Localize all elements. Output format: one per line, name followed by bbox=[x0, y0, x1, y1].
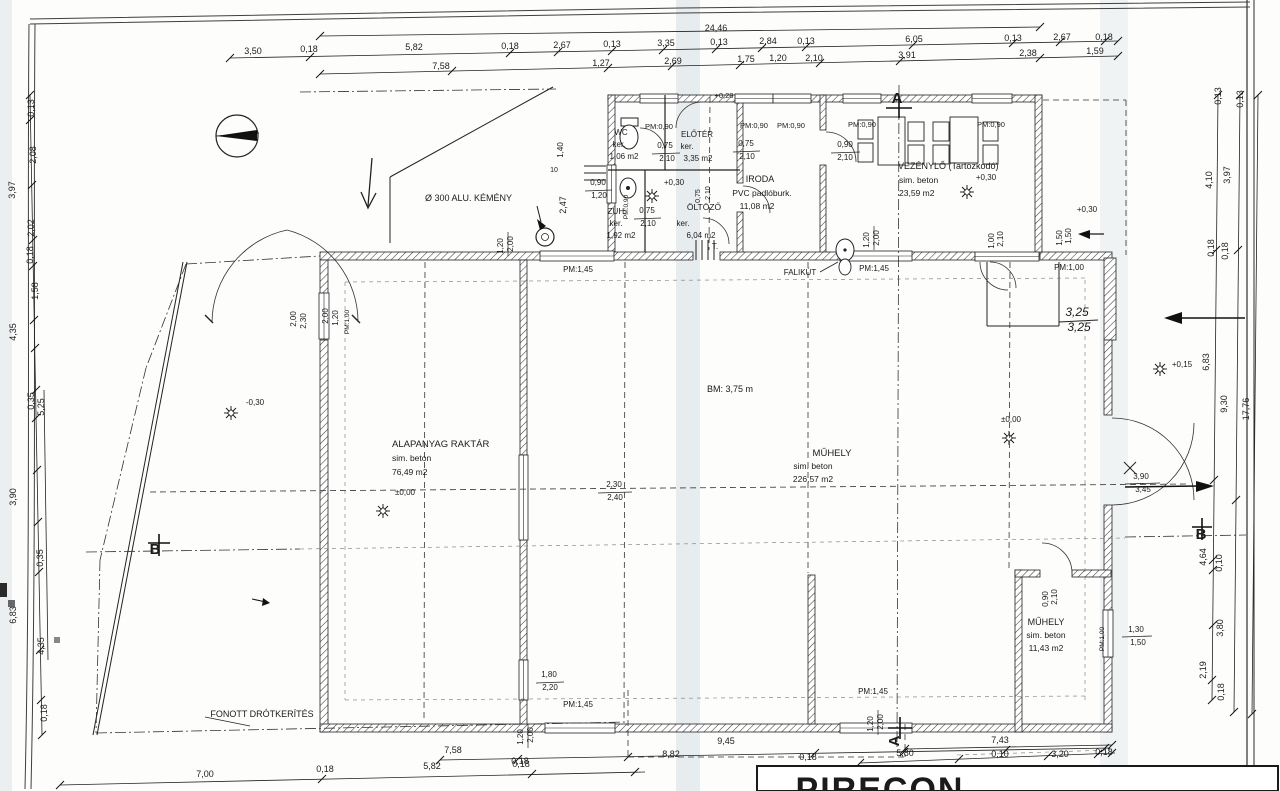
level-mark: +0,15 bbox=[1172, 360, 1193, 369]
dim-label: 2,20 bbox=[542, 683, 558, 692]
dim-label: 1,50 bbox=[1055, 230, 1064, 246]
level-mark: +0,30 bbox=[976, 173, 997, 182]
dim-label: 2,00 bbox=[872, 230, 881, 246]
wall bbox=[1015, 570, 1040, 577]
section-marker-a: A bbox=[892, 90, 903, 107]
dim-label: 1,50 bbox=[1130, 638, 1146, 647]
dim-label: 7,43 bbox=[991, 735, 1009, 745]
section-marker-a: A bbox=[886, 735, 903, 746]
dim-label: 2,10 bbox=[1050, 589, 1059, 605]
dim-label: 6,05 bbox=[905, 34, 923, 44]
dim-label: 2,10 bbox=[640, 219, 656, 228]
level-star-icon bbox=[376, 504, 390, 518]
dim-label: 9,45 bbox=[717, 736, 735, 746]
dim-label: PM:1,45 bbox=[859, 264, 889, 273]
dim-label: 10 bbox=[550, 167, 558, 174]
wall bbox=[1104, 258, 1116, 340]
dim-label: 1,58 bbox=[30, 282, 40, 300]
dim-label: 1,59 bbox=[1086, 46, 1104, 56]
room-name: ALAPANYAG RAKTÁR bbox=[392, 439, 489, 450]
room-name: VEZÉNYLŐ (Tartózkodó) bbox=[898, 161, 999, 171]
dim-label: 0,18 bbox=[1220, 242, 1230, 260]
wall bbox=[820, 95, 826, 130]
level-mark: ±0,00 bbox=[1001, 415, 1022, 424]
dim-label: sim. beton bbox=[793, 461, 832, 471]
dim-label: PM:1,00 bbox=[344, 310, 351, 335]
dim-label: 7,58 bbox=[432, 61, 450, 71]
dim-label: 1,00 bbox=[987, 233, 996, 249]
room-name: ÖLTÖZŐ bbox=[687, 202, 722, 212]
dim-label: 2,10 bbox=[659, 154, 675, 163]
wall bbox=[320, 724, 1112, 732]
dim-label: 0,18 bbox=[300, 44, 318, 54]
dim-label: 2,10 bbox=[837, 153, 853, 162]
dim-label: 2,10 bbox=[805, 53, 823, 63]
dim-label: PM:0,90 bbox=[740, 121, 768, 130]
dim-label: 7,58 bbox=[444, 745, 462, 755]
dim-label: 2,00 bbox=[876, 714, 885, 730]
dim-label: PM:0,90 bbox=[623, 195, 630, 220]
room-name: ELŐTÉR bbox=[681, 130, 713, 139]
dim-label: 3,80 bbox=[1215, 619, 1225, 637]
dim-label: 0,13 bbox=[603, 39, 621, 49]
dim-label: 6,83 bbox=[1201, 353, 1211, 371]
dim-label: 1,20 bbox=[769, 53, 787, 63]
room-area: 11,08 m2 bbox=[740, 201, 775, 211]
dim-label: 2,69 bbox=[664, 56, 682, 66]
dim-label: PM:0,90 bbox=[848, 120, 876, 129]
dim-label: 2,38 bbox=[1019, 48, 1037, 58]
room-name: MŰHELY bbox=[813, 448, 853, 459]
dim-label: PVC padlóburk. bbox=[732, 188, 792, 198]
wall bbox=[1072, 570, 1111, 577]
dim-label: 0,35 bbox=[35, 549, 45, 567]
dim-label: sim. beton bbox=[899, 175, 938, 185]
dim-label: 0,18 bbox=[1206, 239, 1216, 257]
dim-label: 1,20 bbox=[496, 238, 505, 254]
dim-label: 0,75 bbox=[695, 189, 702, 203]
dim-label: 8,82 bbox=[662, 749, 680, 759]
dim-label: 2,00 bbox=[321, 308, 330, 324]
dim-label: 2,10 bbox=[705, 186, 712, 200]
dim-label: 2,84 bbox=[759, 36, 777, 46]
room-area: 3,35 m2 bbox=[684, 154, 713, 163]
dim-label: 1,80 bbox=[541, 670, 557, 679]
level-star-icon bbox=[224, 406, 238, 420]
dim-label: 4,35 bbox=[36, 637, 46, 655]
dim-label: 2,19 bbox=[1198, 661, 1208, 679]
wall bbox=[1040, 252, 1112, 260]
dim-label: PM:0,90 bbox=[777, 121, 805, 130]
dim-label: 3,97 bbox=[7, 181, 17, 199]
dim-label: 0,90 bbox=[837, 140, 853, 149]
dim-label: 0,18 bbox=[1216, 683, 1226, 701]
dim-label: 2,02 bbox=[26, 219, 36, 237]
room-area: 1,92 m2 bbox=[607, 231, 636, 240]
dim-label: 1,30 bbox=[1128, 625, 1144, 634]
dim-label: 0,35 bbox=[26, 392, 36, 410]
room-area: 6,04 m2 bbox=[687, 231, 716, 240]
dim-label: sim. beton bbox=[392, 453, 431, 463]
level-mark: -0,30 bbox=[246, 398, 265, 407]
dim-label: 0,18 bbox=[799, 752, 817, 762]
wall bbox=[808, 575, 815, 724]
dim-label: 3,50 bbox=[244, 46, 262, 56]
dim-label: 0,10 bbox=[991, 749, 1009, 759]
callout-wall-tap: FALIKÚT bbox=[784, 268, 817, 277]
dim-label: 3,90 bbox=[1133, 472, 1149, 481]
wall bbox=[1104, 505, 1112, 610]
room-name: WC bbox=[614, 128, 628, 137]
dim-label: 7,00 bbox=[196, 769, 214, 779]
wall bbox=[737, 212, 743, 258]
dim-label: 2,08 bbox=[28, 146, 38, 164]
section-marker-b: B bbox=[1196, 526, 1207, 543]
dim-label: PM:0,90 bbox=[977, 120, 1005, 129]
dim-label: 3,35 bbox=[657, 38, 675, 48]
wall bbox=[520, 540, 527, 660]
room-name: IRODA bbox=[746, 174, 775, 184]
dim-label: 1,20 bbox=[862, 232, 871, 248]
dim-label: 0,13 bbox=[26, 99, 36, 117]
dim-label: 24,46 bbox=[705, 23, 728, 33]
room-area: 11,43 m2 bbox=[1029, 643, 1064, 653]
wall bbox=[520, 260, 527, 455]
dim-label: 4,10 bbox=[1204, 171, 1214, 189]
dim-label: 1,27 bbox=[592, 58, 610, 68]
dim-label: 2,10 bbox=[739, 152, 755, 161]
dim-label: 2,00 bbox=[506, 236, 515, 252]
wall bbox=[520, 700, 527, 724]
dim-label: 0,13 bbox=[1004, 33, 1022, 43]
level-mark: +0,30 bbox=[1077, 205, 1098, 214]
dim-label: 3,97 bbox=[1222, 166, 1232, 184]
dim-label: PM:1,45 bbox=[563, 265, 593, 274]
level-mark: ±0,00 bbox=[395, 488, 416, 497]
dim-label: 4,64 bbox=[1198, 548, 1208, 566]
dim-label: 0,10 bbox=[1214, 554, 1224, 572]
dim-label: PM:1,45 bbox=[858, 687, 888, 696]
dim-label: 17,76 bbox=[1241, 398, 1251, 421]
dim-label: 0,18 bbox=[1095, 747, 1113, 757]
dim-label: 3,45 bbox=[1135, 485, 1151, 494]
height-note: BM: 3,75 m bbox=[707, 384, 753, 394]
callout-fence: FONOTT DRÓTKERÍTÉS bbox=[210, 709, 313, 719]
dim-label: 0,13 bbox=[1235, 90, 1245, 108]
dim-label: ker. bbox=[613, 140, 626, 149]
floor-plan-drawing: 24,463,500,185,820,182,670,133,350,132,8… bbox=[0, 0, 1280, 791]
dim-label: 2,30 bbox=[299, 313, 308, 329]
dim-label: 1,50 bbox=[1064, 228, 1073, 244]
dim-label: 0,18 bbox=[501, 41, 519, 51]
dim-label: 0,13 bbox=[710, 37, 728, 47]
dim-label: 3,90 bbox=[8, 488, 18, 506]
dim-label: 5,82 bbox=[423, 761, 441, 771]
dim-label: 1,20 bbox=[331, 310, 340, 326]
room-area: 76,49 m2 bbox=[392, 467, 428, 477]
dim-label: 0,18 bbox=[39, 704, 49, 722]
dim-label: 0,90 bbox=[1041, 591, 1050, 607]
dim-label: 5,82 bbox=[405, 42, 423, 52]
dim-label: 5,25 bbox=[36, 398, 46, 416]
dim-label: 1,20 bbox=[866, 716, 875, 732]
handwritten-dim: 3,25 bbox=[1067, 320, 1091, 334]
wall bbox=[320, 252, 693, 260]
dim-label: 3,91 bbox=[898, 50, 916, 60]
dim-label: 0,18 bbox=[316, 764, 334, 774]
dim-label: 0,18 bbox=[512, 759, 530, 769]
dim-label: 0,18 bbox=[25, 246, 35, 264]
dim-label: sim. beton bbox=[1026, 630, 1065, 640]
level-star-icon bbox=[1153, 362, 1167, 376]
scanned-floor-plan-page: 24,463,500,185,820,182,670,133,350,132,8… bbox=[0, 0, 1280, 791]
dim-label: 2,30 bbox=[606, 480, 622, 489]
dim-label: 3,20 bbox=[1051, 749, 1069, 759]
section-marker-b: B bbox=[150, 541, 161, 558]
level-mark: +0,30 bbox=[664, 178, 685, 187]
dim-label: 0,75 bbox=[639, 206, 655, 215]
dim-label: 2,40 bbox=[607, 493, 623, 502]
dim-label: 0,75 bbox=[657, 141, 673, 150]
room-name: MŰHELY bbox=[1028, 617, 1065, 627]
dim-label: 2,00 bbox=[289, 311, 298, 327]
dim-label: 4,35 bbox=[8, 323, 18, 341]
dim-label: 1,75 bbox=[737, 54, 755, 64]
dim-label: 6,83 bbox=[8, 606, 18, 624]
title-block-company: PIRECON bbox=[796, 771, 965, 791]
dim-label: ker. bbox=[610, 219, 623, 228]
wall bbox=[320, 340, 328, 732]
dim-label: 0,75 bbox=[738, 139, 754, 148]
dim-label: PM:1,00 bbox=[1054, 263, 1084, 272]
dim-label: 0,90 bbox=[590, 178, 606, 187]
room-area: 1,06 m2 bbox=[610, 152, 639, 161]
dim-label: 2,10 bbox=[996, 231, 1005, 247]
dim-label: 2,67 bbox=[1053, 32, 1071, 42]
dim-label: PM:0,90 bbox=[645, 122, 673, 131]
scan-artifacts bbox=[0, 0, 1280, 791]
room-area: 23,59 m2 bbox=[899, 188, 935, 198]
level-star-icon bbox=[645, 189, 659, 203]
wall bbox=[320, 260, 328, 295]
level-star-icon bbox=[960, 185, 974, 199]
dim-label: 9,30 bbox=[1219, 395, 1229, 413]
level-star-icon bbox=[1002, 431, 1016, 445]
wall bbox=[820, 165, 826, 255]
room-area: 226,57 m2 bbox=[793, 474, 833, 484]
wall bbox=[1104, 657, 1112, 732]
dim-label: 0,13 bbox=[797, 36, 815, 46]
dim-label: 2,00 bbox=[526, 727, 535, 743]
dim-label: PM:1,45 bbox=[563, 700, 593, 709]
dim-label: 2,47 bbox=[558, 196, 568, 214]
wall bbox=[1015, 570, 1022, 732]
dim-label: PM:1,00 bbox=[1099, 627, 1106, 652]
wall bbox=[1035, 95, 1042, 255]
dim-label: T. bbox=[712, 242, 718, 251]
dim-label: ker. bbox=[677, 219, 690, 228]
dim-label: 2,67 bbox=[553, 40, 571, 50]
dim-label: 0,13 bbox=[1213, 87, 1223, 105]
dim-label: 0,18 bbox=[1095, 32, 1113, 42]
dim-label: 5,80 bbox=[896, 748, 914, 758]
level-mark: +0,28 bbox=[715, 91, 734, 100]
handwritten-dim: 3,25 bbox=[1065, 305, 1089, 319]
dim-label: 1,20 bbox=[591, 191, 607, 200]
dim-label: 1,40 bbox=[556, 142, 565, 158]
wall bbox=[1104, 340, 1112, 415]
dim-label: ker. bbox=[681, 142, 694, 151]
dim-label: 1,20 bbox=[516, 729, 525, 745]
callout-chimney: Ø 300 ALU. KÉMÉNY bbox=[425, 193, 512, 203]
